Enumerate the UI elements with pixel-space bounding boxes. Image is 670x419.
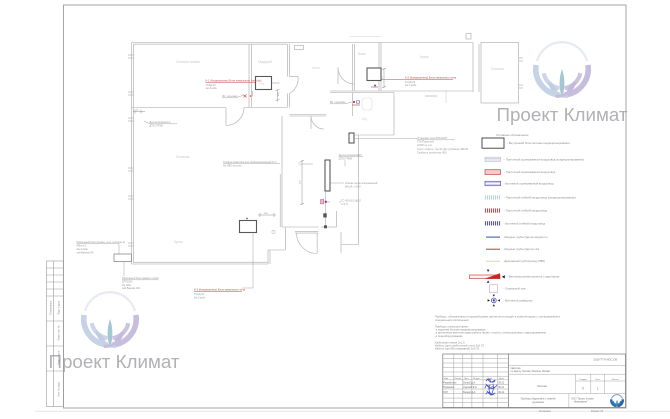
svg-text:хай Ванная К9: хай Ванная К9 [77,252,94,255]
svg-text:Условные обозначения: Условные обозначения [496,133,529,137]
svg-text:Установка типа ЛИССАНТ: Установка типа ЛИССАНТ [417,137,448,140]
svg-text:06.21: 06.21 [498,391,505,394]
svg-text:Белый Д.А.: Белый Д.А. [463,382,476,385]
svg-text:К-1 (Кондиционер) Блок канальн: К-1 (Кондиционер) Блок канального типа №… [206,78,263,82]
svg-text:ЛК. черновая: ЛК. черновая [222,95,238,98]
svg-text:- Внутренний блок системы конд: - Внутренний блок системы кондиционирова… [507,141,570,145]
svg-text:Подп. и дата: Подп. и дата [58,350,61,365]
svg-text:Формат А3: Формат А3 [591,410,604,413]
svg-text:Кухня: Кухня [420,55,429,59]
svg-text:2м-3 кабе: 2м-3 кабе [77,248,89,251]
svg-text:4х500 не схл: 4х500 не схл [417,144,432,147]
svg-text:УТК/Практик-8: УТК/Практик-8 [417,141,434,144]
svg-text:2020-ТГ-П-ИОС.ОВ: 2020-ТГ-П-ИОС.ОВ [594,358,618,362]
svg-text:- Вентиляционная решетка с ада: - Вентиляционная решетка с адаптером [507,274,559,278]
svg-text:На ПВХ на силе: На ПВХ на силе [223,164,242,167]
svg-text:К-2 (Кондиционер) Блок канальн: К-2 (Кондиционер) Блок канального типа [405,75,457,79]
svg-text:ВАх24, L=500: ВАх24, L=500 [345,185,361,188]
svg-text:урезанием: урезанием [532,401,544,404]
svg-text:Третр открыть, так 3м (Д) труб: Третр открыть, так 3м (Д) труб/канал 4Вх… [417,148,469,151]
svg-text:Гостиная: Гостиная [176,155,190,159]
svg-text:– Приточный (гибкий) воздухово: – Приточный (гибкий) воздуховод [504,209,548,213]
svg-text:06.21: 06.21 [498,382,505,385]
svg-text:Монтаж: Монтаж [537,384,547,388]
svg-text:Лист: Лист [595,379,600,381]
svg-text:- Вытяжной диффузор: - Вытяжной диффузор [504,298,534,302]
svg-text:специального исполнения: специального исполнения [435,319,469,322]
svg-text:ДТ03 ГРМ8: ДТ03 ГРМ8 [339,157,353,160]
svg-text:– Приточный (гибкий) воздухово: – Приточный (гибкий) воздуховод (кондици… [504,195,576,199]
svg-text:ЛМсли 2: ЛМсли 2 [77,244,88,247]
svg-text:ГАП: ГАП [443,391,448,394]
svg-text:Копировал: Копировал [539,410,552,413]
svg-text:2м-3 кабе: 2м-3 кабе [194,296,206,299]
svg-text:Курский Е.А.: Курский Е.А. [463,386,477,389]
svg-text:-к переоборудованию: -к переоборудованию [435,334,463,338]
svg-text:Проект Климат: Проект Климат [48,351,179,372]
svg-text:Квартира: Квартира [511,368,522,370]
svg-text:Лист: Лист [464,378,469,380]
svg-text:Проверил: Проверил [443,386,455,389]
svg-text:2м-3 кабе: 2м-3 кабе [206,87,218,90]
svg-text:- Вытяжной оцинкованный воздух: - Вытяжной оцинкованный воздуховод [504,182,554,186]
svg-text:Напольный блок (примы, слот си: Напольный блок (примы, слот системы К) [77,241,126,244]
svg-text:Кухня: Кухня [174,240,183,244]
svg-text:ТСКД: ТСКД [259,84,265,86]
svg-text:Тройник разветвления комбиниро: Тройник разветвления комбинированный К2.… [223,161,277,164]
svg-text:06.21: 06.21 [498,386,505,389]
svg-text:Взам. инв. №: Взам. инв. № [58,325,61,340]
svg-text:Листов: Листов [611,379,619,381]
svg-text:Кол.уч: Кол.уч [455,378,462,380]
svg-text:- Вытяжной (гибкий) воздуховод: - Вытяжной (гибкий) воздуховод [504,221,546,225]
svg-text:Стадия: Стадия [579,379,587,381]
svg-text:- Сервисный люк: - Сервисный люк [504,287,527,291]
svg-text:Прихожая: Прихожая [298,162,313,166]
svg-text:– Приточный оцинкованный возду: – Приточный оцинкованный воздуховод (кон… [504,157,585,161]
svg-text:Снабдить экологизат Ф10: Снабдить экологизат Ф10 [417,151,447,154]
svg-text:Ванн.: Ванн. [358,52,366,56]
svg-text:ООО "Проект Климат: ООО "Проект Климат [571,398,595,400]
svg-text:ВК. черновая: ВК. черновая [330,101,346,104]
svg-text:Кабель (для ВК проводной) 3х0,: Кабель (для ВК проводной) 3х0,75 [435,347,480,351]
svg-text:П: П [582,387,584,391]
svg-text:Инв. № подл.: Инв. № подл. [58,381,61,396]
svg-text:по адресу: Москва, Минская, Мо: по адресу: Москва, Минская, Москва [511,371,551,373]
svg-text:ДТ03 ГРМ8: ДТ03 ГРМ8 [150,124,164,127]
svg-text:Спальня: Спальня [491,67,504,71]
svg-text:Белый Д.А.: Белый Д.А. [463,391,476,394]
svg-text:Проект Климат: Проект Климат [496,104,627,125]
svg-text:Подп. и дата: Подп. и дата [58,300,61,315]
svg-text:Согласовано: Согласовано [50,300,53,315]
svg-text:Инжиниринг": Инжиниринг" [574,402,588,404]
svg-text:-Медные трубы (фреон газ): -Медные трубы (фреон газ) [504,247,540,251]
svg-text:Дата: Дата [499,378,505,380]
svg-text:№ док.: № док. [473,377,480,380]
svg-text:Изм.: Изм. [444,378,449,380]
svg-text:ТС-400-200 ЩСЛ: ТС-400-200 ЩСЛ [341,199,361,202]
svg-text:– Приточный оцинкованный возду: – Приточный оцинкованный воздуховод [504,170,556,174]
svg-text:-Дренажный трубопровод (ПВХ): -Дренажный трубопровод (ПВХ) [504,259,546,263]
svg-text:Разработал: Разработал [443,382,457,385]
svg-text:2м-3 кабе: 2м-3 кабе [405,84,417,87]
svg-text:Холл: Холл [312,66,320,70]
svg-text:Гардероб: Гардероб [258,60,272,64]
svg-text:К-3 (Кондиционер) Блок канальн: К-3 (Кондиционер) Блок канального типа [194,288,246,292]
svg-text:С/у: С/у [362,117,367,121]
svg-text:Спальня хозяев: Спальня хозяев [176,60,200,64]
svg-text:L=4 П: L=4 П [341,203,348,206]
svg-text:хай Ванная К01: хай Ванная К01 [122,287,141,290]
svg-text:-Медные трубы (фреон жидкость): -Медные трубы (фреон жидкость) [504,235,548,239]
